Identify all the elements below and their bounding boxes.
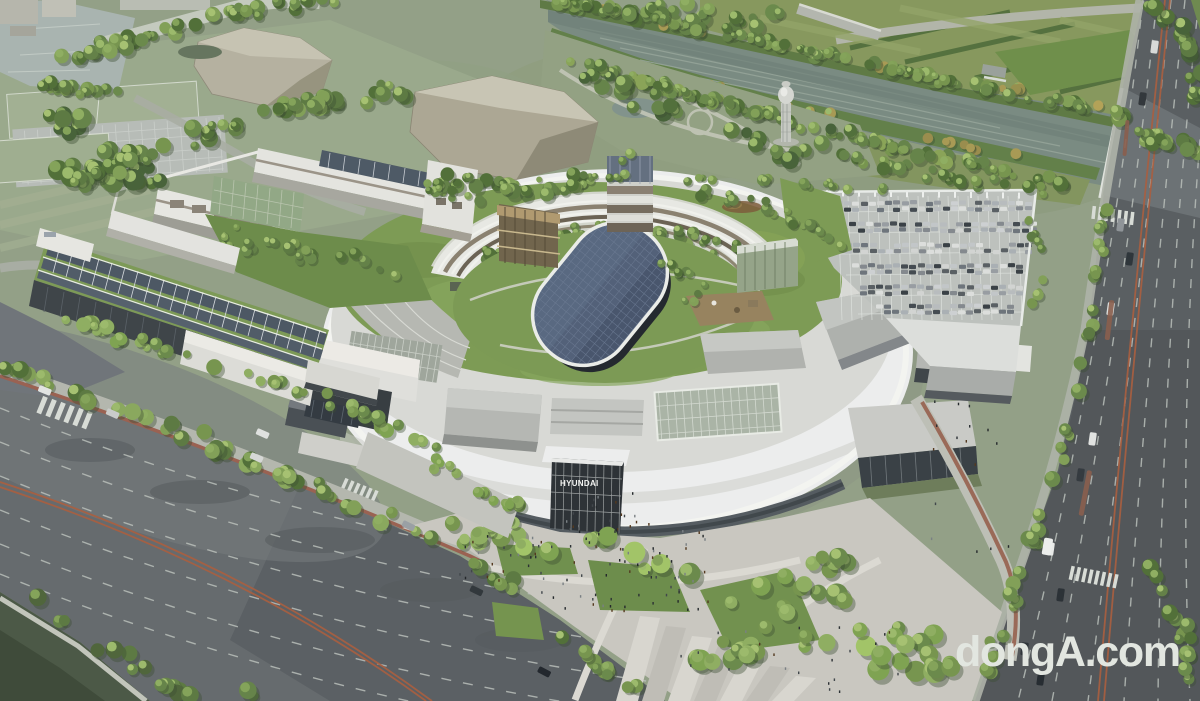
svg-text:dongA.com: dongA.com: [955, 628, 1180, 676]
svg-text:HYUNDAI: HYUNDAI: [560, 479, 599, 488]
